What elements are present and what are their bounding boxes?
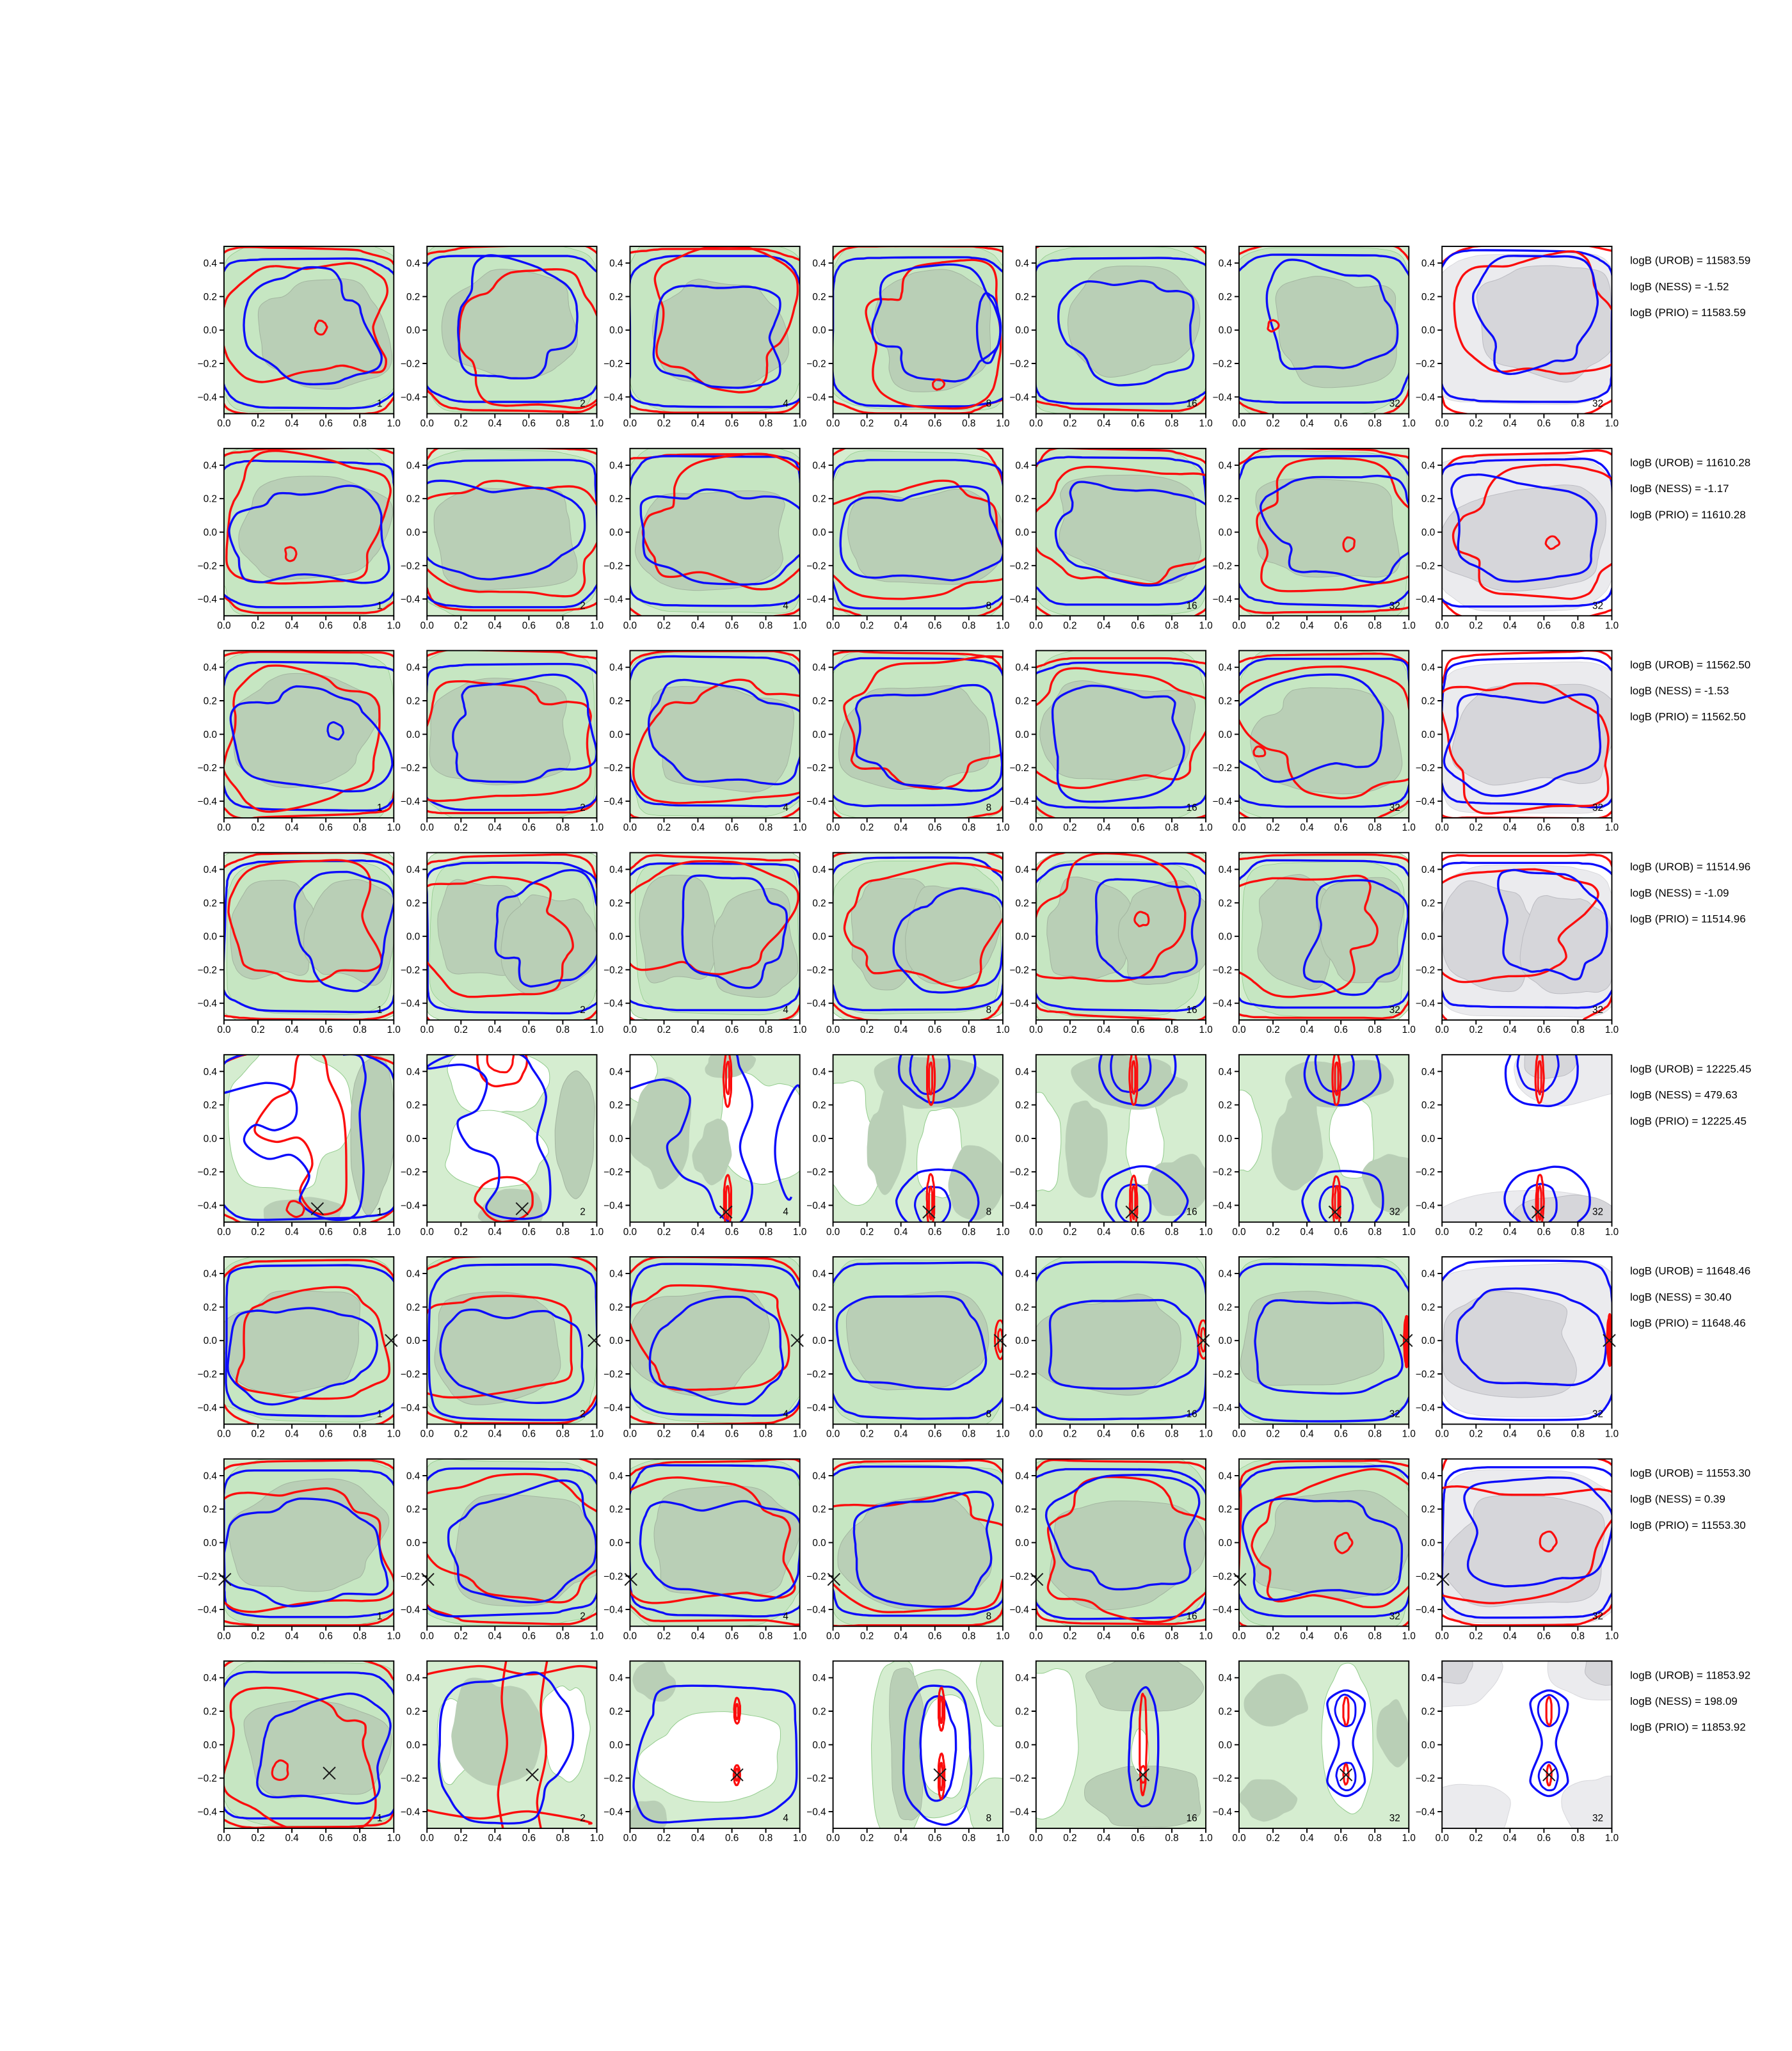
svg-text:0.0: 0.0 [217, 1025, 230, 1035]
svg-text:0.4: 0.4 [1503, 1631, 1517, 1641]
svg-text:0.6: 0.6 [928, 620, 941, 631]
svg-text:0.8: 0.8 [1571, 419, 1585, 429]
svg-text:−0.4: −0.4 [1010, 1807, 1030, 1817]
svg-text:0.8: 0.8 [759, 1227, 772, 1238]
svg-text:0.2: 0.2 [812, 1504, 826, 1515]
svg-text:−0.4: −0.4 [1213, 1605, 1233, 1616]
svg-text:0.4: 0.4 [488, 1227, 502, 1238]
svg-text:0.0: 0.0 [1421, 1133, 1435, 1144]
svg-text:0.4: 0.4 [609, 259, 623, 269]
svg-text:0.8: 0.8 [556, 1833, 570, 1844]
svg-text:0.8: 0.8 [556, 822, 570, 833]
svg-text:−0.2: −0.2 [806, 1369, 826, 1380]
svg-text:−0.2: −0.2 [1010, 1773, 1029, 1784]
svg-text:logB (NESS) = -1.17: logB (NESS) = -1.17 [1630, 483, 1729, 495]
svg-text:−0.2: −0.2 [1010, 1369, 1029, 1380]
svg-text:1.0: 1.0 [1605, 1833, 1619, 1844]
svg-text:0.8: 0.8 [962, 822, 975, 833]
svg-text:2: 2 [580, 1813, 586, 1824]
svg-text:0.0: 0.0 [812, 1740, 826, 1751]
svg-text:0.4: 0.4 [488, 620, 502, 631]
svg-text:1.0: 1.0 [590, 419, 604, 429]
svg-text:−0.4: −0.4 [604, 1807, 623, 1817]
svg-text:0.0: 0.0 [826, 1025, 840, 1035]
svg-text:1.0: 1.0 [1605, 620, 1619, 631]
svg-text:−0.4: −0.4 [1416, 595, 1436, 605]
svg-text:0.2: 0.2 [406, 696, 420, 707]
svg-text:0.2: 0.2 [204, 1707, 217, 1718]
svg-text:0.6: 0.6 [725, 1631, 739, 1641]
svg-text:0.6: 0.6 [1537, 1227, 1551, 1238]
svg-text:−0.4: −0.4 [198, 392, 218, 403]
svg-text:0.4: 0.4 [285, 1631, 299, 1641]
svg-text:0.0: 0.0 [1421, 1336, 1435, 1346]
svg-text:0.2: 0.2 [657, 1429, 671, 1440]
svg-text:0.2: 0.2 [454, 1227, 468, 1238]
svg-text:0.0: 0.0 [1232, 1631, 1245, 1641]
svg-text:1.0: 1.0 [996, 1429, 1009, 1440]
svg-text:−0.2: −0.2 [401, 763, 420, 774]
svg-text:0.0: 0.0 [1016, 325, 1029, 336]
svg-text:1.0: 1.0 [1199, 1833, 1212, 1844]
svg-text:16: 16 [1187, 1005, 1197, 1016]
svg-text:0.2: 0.2 [251, 1227, 264, 1238]
svg-text:−0.2: −0.2 [401, 965, 420, 976]
svg-text:0.8: 0.8 [1368, 1833, 1382, 1844]
svg-text:0.2: 0.2 [860, 620, 874, 631]
svg-text:0.2: 0.2 [657, 620, 671, 631]
svg-text:logB (NESS) = -1.09: logB (NESS) = -1.09 [1630, 887, 1729, 899]
svg-text:0.2: 0.2 [454, 1025, 468, 1035]
svg-text:0.4: 0.4 [285, 620, 299, 631]
svg-text:0.0: 0.0 [826, 822, 840, 833]
svg-text:−0.4: −0.4 [1416, 1807, 1436, 1817]
svg-text:0.0: 0.0 [609, 932, 623, 943]
svg-text:−0.4: −0.4 [401, 998, 420, 1009]
svg-text:−0.4: −0.4 [1010, 392, 1030, 403]
svg-text:0.6: 0.6 [522, 822, 536, 833]
svg-text:32: 32 [1389, 600, 1400, 611]
svg-text:0.4: 0.4 [1016, 865, 1030, 875]
svg-text:0.0: 0.0 [1232, 1025, 1245, 1035]
svg-text:−0.2: −0.2 [401, 1773, 420, 1784]
svg-text:logB (NESS) = 198.09: logB (NESS) = 198.09 [1630, 1695, 1738, 1707]
svg-text:0.2: 0.2 [454, 1631, 468, 1641]
svg-text:1.0: 1.0 [590, 1429, 604, 1440]
svg-text:0.0: 0.0 [623, 1631, 637, 1641]
svg-text:0.8: 0.8 [556, 1429, 570, 1440]
svg-text:−0.4: −0.4 [806, 1201, 826, 1211]
svg-text:1.0: 1.0 [1199, 1429, 1212, 1440]
svg-text:0.2: 0.2 [1063, 419, 1076, 429]
svg-text:−0.2: −0.2 [1213, 561, 1232, 571]
svg-text:0.4: 0.4 [406, 865, 420, 875]
svg-text:0.4: 0.4 [1503, 419, 1517, 429]
svg-text:0.2: 0.2 [1063, 620, 1076, 631]
svg-text:0.2: 0.2 [454, 1429, 468, 1440]
svg-text:−0.4: −0.4 [401, 1807, 420, 1817]
svg-text:1.0: 1.0 [1402, 419, 1416, 429]
svg-text:0.4: 0.4 [1219, 865, 1233, 875]
svg-text:0.6: 0.6 [1334, 1631, 1348, 1641]
svg-text:1.0: 1.0 [590, 1833, 604, 1844]
svg-text:0.8: 0.8 [962, 1025, 975, 1035]
svg-text:1.0: 1.0 [996, 620, 1009, 631]
svg-text:0.4: 0.4 [812, 460, 826, 471]
svg-text:0.4: 0.4 [285, 822, 299, 833]
svg-text:0.2: 0.2 [1063, 822, 1076, 833]
svg-text:−0.2: −0.2 [806, 1773, 826, 1784]
svg-text:0.2: 0.2 [609, 494, 623, 505]
svg-text:0.0: 0.0 [1016, 1538, 1029, 1549]
svg-text:−0.2: −0.2 [1416, 359, 1435, 370]
svg-text:0.2: 0.2 [1219, 292, 1232, 303]
svg-text:−0.2: −0.2 [1213, 1167, 1232, 1178]
svg-text:0.2: 0.2 [204, 898, 217, 909]
svg-text:1.0: 1.0 [387, 620, 401, 631]
svg-text:0.2: 0.2 [812, 292, 826, 303]
svg-text:0.4: 0.4 [406, 1673, 420, 1684]
svg-text:0.2: 0.2 [609, 696, 623, 707]
svg-text:0.0: 0.0 [1029, 822, 1043, 833]
svg-text:1.0: 1.0 [387, 822, 401, 833]
svg-text:0.8: 0.8 [1368, 822, 1382, 833]
svg-text:−0.4: −0.4 [1416, 392, 1436, 403]
svg-text:0.6: 0.6 [1131, 1631, 1144, 1641]
svg-text:0.0: 0.0 [1421, 325, 1435, 336]
svg-text:0.4: 0.4 [812, 1673, 826, 1684]
svg-text:0.4: 0.4 [691, 620, 705, 631]
svg-text:1.0: 1.0 [1402, 1227, 1416, 1238]
svg-text:logB (PRIO) = 11853.92: logB (PRIO) = 11853.92 [1630, 1721, 1746, 1734]
svg-text:−0.2: −0.2 [401, 561, 420, 571]
svg-text:0.6: 0.6 [1537, 620, 1551, 631]
svg-text:0.8: 0.8 [1165, 822, 1178, 833]
svg-text:0.6: 0.6 [1537, 822, 1551, 833]
svg-text:0.6: 0.6 [1131, 620, 1144, 631]
svg-text:0.8: 0.8 [759, 419, 772, 429]
svg-text:0.2: 0.2 [406, 1100, 420, 1111]
svg-text:0.4: 0.4 [1421, 1673, 1436, 1684]
svg-text:0.8: 0.8 [353, 1631, 367, 1641]
svg-text:0.2: 0.2 [609, 1302, 623, 1313]
svg-text:−0.2: −0.2 [1416, 561, 1435, 571]
svg-text:2: 2 [580, 1005, 586, 1016]
svg-text:0.0: 0.0 [1029, 419, 1043, 429]
svg-text:1.0: 1.0 [793, 620, 806, 631]
svg-text:0.8: 0.8 [1571, 822, 1585, 833]
svg-text:0.4: 0.4 [894, 1631, 908, 1641]
svg-text:32: 32 [1592, 1005, 1603, 1016]
svg-text:0.6: 0.6 [928, 1631, 941, 1641]
svg-text:1.0: 1.0 [1199, 1025, 1212, 1035]
svg-text:0.8: 0.8 [1165, 1025, 1178, 1035]
svg-text:0.6: 0.6 [319, 620, 333, 631]
svg-text:0.4: 0.4 [1421, 1471, 1436, 1481]
svg-text:0.4: 0.4 [609, 662, 623, 673]
svg-text:−0.2: −0.2 [198, 1571, 217, 1582]
svg-text:0.4: 0.4 [812, 1067, 826, 1078]
svg-text:0.4: 0.4 [1503, 1833, 1517, 1844]
svg-text:0.2: 0.2 [812, 696, 826, 707]
svg-text:0.6: 0.6 [319, 1227, 333, 1238]
svg-text:0.2: 0.2 [860, 1631, 874, 1641]
svg-text:0.0: 0.0 [826, 1833, 840, 1844]
svg-text:0.8: 0.8 [556, 620, 570, 631]
svg-text:0.4: 0.4 [1503, 620, 1517, 631]
svg-text:0.2: 0.2 [1421, 292, 1435, 303]
svg-text:0.2: 0.2 [1219, 898, 1232, 909]
svg-text:0.2: 0.2 [204, 1100, 217, 1111]
svg-text:−0.4: −0.4 [198, 796, 218, 807]
svg-text:−0.2: −0.2 [1416, 965, 1435, 976]
svg-text:0.2: 0.2 [454, 1833, 468, 1844]
svg-text:0.4: 0.4 [609, 865, 623, 875]
svg-text:0.4: 0.4 [1016, 662, 1030, 673]
svg-text:0.0: 0.0 [420, 1631, 434, 1641]
svg-text:logB (NESS) = 479.63: logB (NESS) = 479.63 [1630, 1089, 1738, 1101]
svg-text:0.4: 0.4 [1219, 662, 1233, 673]
svg-text:0.6: 0.6 [725, 1227, 739, 1238]
svg-text:0.2: 0.2 [1219, 1100, 1232, 1111]
svg-text:0.4: 0.4 [1097, 1227, 1111, 1238]
svg-text:8: 8 [986, 600, 992, 611]
svg-text:0.2: 0.2 [1063, 1833, 1076, 1844]
svg-text:−0.4: −0.4 [604, 1403, 623, 1414]
svg-text:logB (PRIO) = 11514.96: logB (PRIO) = 11514.96 [1630, 913, 1746, 925]
svg-text:0.4: 0.4 [1421, 460, 1436, 471]
svg-text:0.4: 0.4 [285, 1429, 299, 1440]
svg-text:0.2: 0.2 [1219, 1504, 1232, 1515]
svg-text:logB (UROB) = 11553.30: logB (UROB) = 11553.30 [1630, 1467, 1750, 1480]
svg-text:0.2: 0.2 [251, 1025, 264, 1035]
svg-text:−0.4: −0.4 [1010, 796, 1030, 807]
svg-text:0.2: 0.2 [1469, 419, 1483, 429]
svg-text:1: 1 [377, 1207, 383, 1218]
svg-text:logB (PRIO) = 11648.46: logB (PRIO) = 11648.46 [1630, 1317, 1746, 1329]
svg-text:32: 32 [1592, 1611, 1603, 1622]
svg-text:0.6: 0.6 [928, 1025, 941, 1035]
svg-text:2: 2 [580, 1611, 586, 1622]
svg-text:0.2: 0.2 [812, 1707, 826, 1718]
svg-text:1.0: 1.0 [590, 822, 604, 833]
svg-text:1.0: 1.0 [1199, 1227, 1212, 1238]
svg-text:0.0: 0.0 [1232, 1429, 1245, 1440]
svg-text:0.0: 0.0 [623, 1429, 637, 1440]
svg-text:0.4: 0.4 [1421, 1067, 1436, 1078]
svg-text:0.2: 0.2 [657, 419, 671, 429]
svg-text:1: 1 [377, 600, 383, 611]
svg-text:−0.4: −0.4 [1213, 1403, 1233, 1414]
svg-text:0.8: 0.8 [1368, 1429, 1382, 1440]
svg-text:0.0: 0.0 [1232, 620, 1245, 631]
svg-text:−0.2: −0.2 [806, 965, 826, 976]
svg-text:0.0: 0.0 [217, 620, 230, 631]
svg-text:0.2: 0.2 [1421, 696, 1435, 707]
svg-text:logB (PRIO) = 11583.59: logB (PRIO) = 11583.59 [1630, 307, 1746, 319]
svg-text:logB (UROB) = 11853.92: logB (UROB) = 11853.92 [1630, 1669, 1750, 1681]
svg-text:−0.2: −0.2 [401, 1369, 420, 1380]
svg-text:logB (UROB) = 11610.28: logB (UROB) = 11610.28 [1630, 457, 1750, 469]
svg-text:32: 32 [1592, 399, 1603, 410]
svg-text:0.0: 0.0 [1219, 730, 1232, 740]
svg-text:0.4: 0.4 [406, 1471, 420, 1481]
svg-text:0.0: 0.0 [406, 325, 420, 336]
svg-text:0.4: 0.4 [812, 1269, 826, 1280]
svg-text:0.2: 0.2 [251, 419, 264, 429]
svg-text:0.6: 0.6 [1131, 1025, 1144, 1035]
svg-text:0.4: 0.4 [406, 1269, 420, 1280]
svg-text:−0.2: −0.2 [198, 1773, 217, 1784]
svg-text:0.8: 0.8 [962, 1833, 975, 1844]
svg-text:−0.2: −0.2 [1416, 1571, 1435, 1582]
svg-text:0.2: 0.2 [406, 1707, 420, 1718]
svg-text:0.0: 0.0 [420, 1833, 434, 1844]
svg-text:0.4: 0.4 [1097, 620, 1111, 631]
svg-text:0.6: 0.6 [928, 1227, 941, 1238]
svg-text:0.4: 0.4 [894, 1025, 908, 1035]
svg-text:0.4: 0.4 [285, 1025, 299, 1035]
svg-text:0.2: 0.2 [812, 1302, 826, 1313]
svg-text:0.2: 0.2 [1266, 1833, 1279, 1844]
svg-text:32: 32 [1592, 600, 1603, 611]
svg-text:0.6: 0.6 [522, 1833, 536, 1844]
svg-text:0.0: 0.0 [1029, 1833, 1043, 1844]
svg-text:−0.4: −0.4 [401, 595, 420, 605]
svg-text:−0.4: −0.4 [1416, 1403, 1436, 1414]
svg-text:0.0: 0.0 [204, 932, 217, 943]
svg-text:0.6: 0.6 [1131, 1429, 1144, 1440]
svg-text:0.0: 0.0 [1016, 1133, 1029, 1144]
svg-text:0.4: 0.4 [1016, 1673, 1030, 1684]
svg-text:0.4: 0.4 [894, 620, 908, 631]
svg-text:0.0: 0.0 [1421, 730, 1435, 740]
svg-text:0.0: 0.0 [204, 1133, 217, 1144]
svg-text:0.0: 0.0 [204, 1740, 217, 1751]
svg-text:0.4: 0.4 [1300, 1631, 1314, 1641]
svg-text:1.0: 1.0 [996, 1025, 1009, 1035]
svg-text:0.8: 0.8 [353, 620, 367, 631]
svg-text:1.0: 1.0 [590, 1631, 604, 1641]
svg-text:0.2: 0.2 [1266, 620, 1279, 631]
svg-text:0.0: 0.0 [623, 1025, 637, 1035]
svg-text:0.4: 0.4 [285, 419, 299, 429]
svg-text:0.0: 0.0 [609, 1538, 623, 1549]
svg-text:−0.4: −0.4 [806, 392, 826, 403]
svg-text:0.0: 0.0 [812, 1538, 826, 1549]
svg-text:0.6: 0.6 [928, 419, 941, 429]
svg-text:1.0: 1.0 [1402, 1631, 1416, 1641]
svg-text:0.2: 0.2 [860, 1833, 874, 1844]
svg-text:0.4: 0.4 [609, 460, 623, 471]
svg-text:1.0: 1.0 [793, 419, 806, 429]
svg-text:0.2: 0.2 [406, 494, 420, 505]
svg-text:0.6: 0.6 [1537, 1631, 1551, 1641]
svg-text:−0.2: −0.2 [198, 1167, 217, 1178]
svg-text:−0.4: −0.4 [806, 1605, 826, 1616]
svg-text:−0.2: −0.2 [401, 359, 420, 370]
svg-text:0.0: 0.0 [623, 1833, 637, 1844]
svg-text:8: 8 [986, 399, 992, 410]
svg-text:1.0: 1.0 [1605, 1631, 1619, 1641]
svg-text:−0.2: −0.2 [806, 763, 826, 774]
svg-text:1.0: 1.0 [590, 620, 604, 631]
svg-text:0.0: 0.0 [1016, 1740, 1029, 1751]
svg-text:−0.2: −0.2 [401, 1167, 420, 1178]
svg-text:0.4: 0.4 [1097, 1631, 1111, 1641]
svg-text:1.0: 1.0 [793, 1429, 806, 1440]
svg-text:0.6: 0.6 [522, 1429, 536, 1440]
svg-text:0.6: 0.6 [1537, 1429, 1551, 1440]
svg-text:0.4: 0.4 [812, 662, 826, 673]
svg-text:4: 4 [783, 1005, 788, 1016]
svg-text:−0.2: −0.2 [1010, 763, 1029, 774]
svg-text:0.0: 0.0 [609, 1133, 623, 1144]
svg-text:−0.2: −0.2 [806, 561, 826, 571]
svg-text:logB (PRIO) = 11610.28: logB (PRIO) = 11610.28 [1630, 509, 1746, 521]
svg-text:0.0: 0.0 [217, 822, 230, 833]
svg-text:0.6: 0.6 [319, 822, 333, 833]
svg-text:−0.4: −0.4 [1213, 796, 1233, 807]
svg-text:1.0: 1.0 [1605, 1025, 1619, 1035]
svg-text:0.6: 0.6 [1334, 419, 1348, 429]
svg-text:0.2: 0.2 [204, 696, 217, 707]
svg-text:8: 8 [986, 1207, 992, 1218]
svg-text:0.0: 0.0 [812, 527, 826, 538]
svg-text:−0.4: −0.4 [1416, 998, 1436, 1009]
svg-text:4: 4 [783, 399, 788, 410]
svg-text:0.2: 0.2 [1469, 1429, 1483, 1440]
svg-text:1: 1 [377, 802, 383, 813]
svg-text:2: 2 [580, 802, 586, 813]
svg-text:0.4: 0.4 [1219, 460, 1233, 471]
svg-text:1.0: 1.0 [1402, 1429, 1416, 1440]
svg-text:0.8: 0.8 [1368, 1631, 1382, 1641]
svg-text:1.0: 1.0 [1402, 1025, 1416, 1035]
svg-text:0.4: 0.4 [488, 1429, 502, 1440]
svg-text:0.0: 0.0 [1421, 932, 1435, 943]
svg-text:1.0: 1.0 [996, 822, 1009, 833]
svg-text:0.2: 0.2 [1016, 494, 1029, 505]
svg-text:logB (NESS) = -1.53: logB (NESS) = -1.53 [1630, 685, 1729, 697]
svg-text:0.0: 0.0 [1421, 1538, 1435, 1549]
svg-text:0.2: 0.2 [251, 1429, 264, 1440]
svg-text:0.6: 0.6 [522, 620, 536, 631]
svg-text:1.0: 1.0 [996, 419, 1009, 429]
svg-text:0.2: 0.2 [454, 419, 468, 429]
svg-text:0.0: 0.0 [406, 932, 420, 943]
svg-text:0.8: 0.8 [962, 1227, 975, 1238]
svg-text:0.6: 0.6 [725, 419, 739, 429]
svg-text:−0.2: −0.2 [1213, 1773, 1232, 1784]
svg-text:0.6: 0.6 [319, 1631, 333, 1641]
svg-text:0.4: 0.4 [1300, 1429, 1314, 1440]
svg-text:0.2: 0.2 [1469, 1833, 1483, 1844]
svg-text:0.6: 0.6 [928, 1833, 941, 1844]
svg-text:4: 4 [783, 1813, 788, 1824]
svg-text:0.0: 0.0 [217, 419, 230, 429]
svg-text:0.8: 0.8 [759, 620, 772, 631]
svg-text:0.0: 0.0 [812, 1336, 826, 1346]
svg-text:0.8: 0.8 [1571, 1429, 1585, 1440]
svg-text:0.0: 0.0 [1219, 1336, 1232, 1346]
svg-text:−0.4: −0.4 [401, 796, 420, 807]
svg-text:−0.2: −0.2 [1213, 1369, 1232, 1380]
svg-text:1: 1 [377, 1813, 383, 1824]
svg-text:0.0: 0.0 [217, 1429, 230, 1440]
svg-text:1.0: 1.0 [793, 1631, 806, 1641]
svg-text:logB (UROB) = 11514.96: logB (UROB) = 11514.96 [1630, 861, 1750, 873]
